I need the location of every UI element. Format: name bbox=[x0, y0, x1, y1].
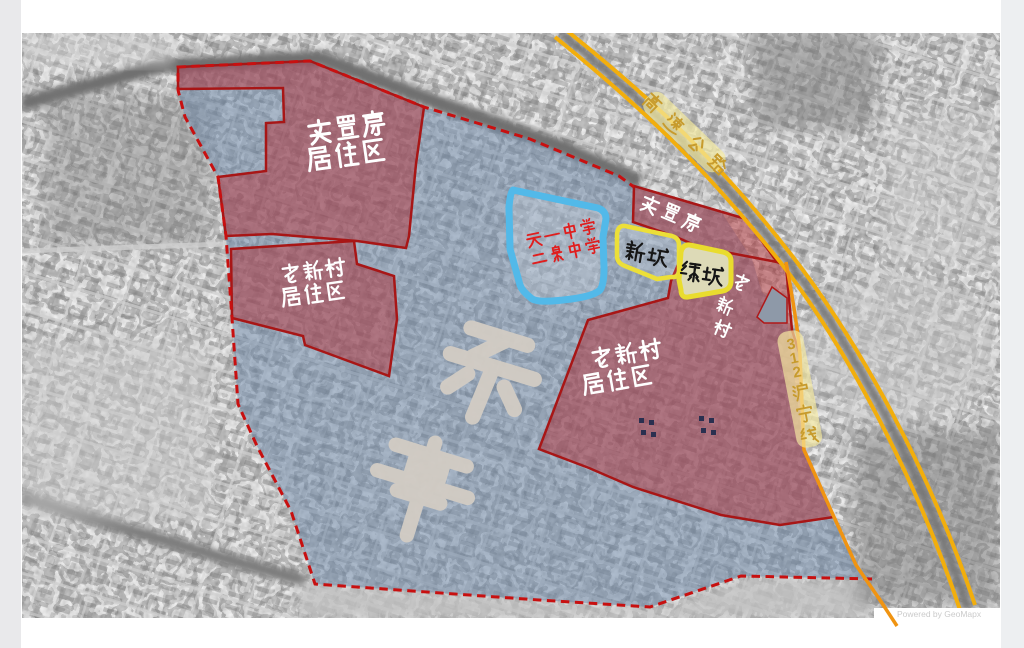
svg-text:Powered by GeoMapx: Powered by GeoMapx bbox=[897, 609, 982, 619]
